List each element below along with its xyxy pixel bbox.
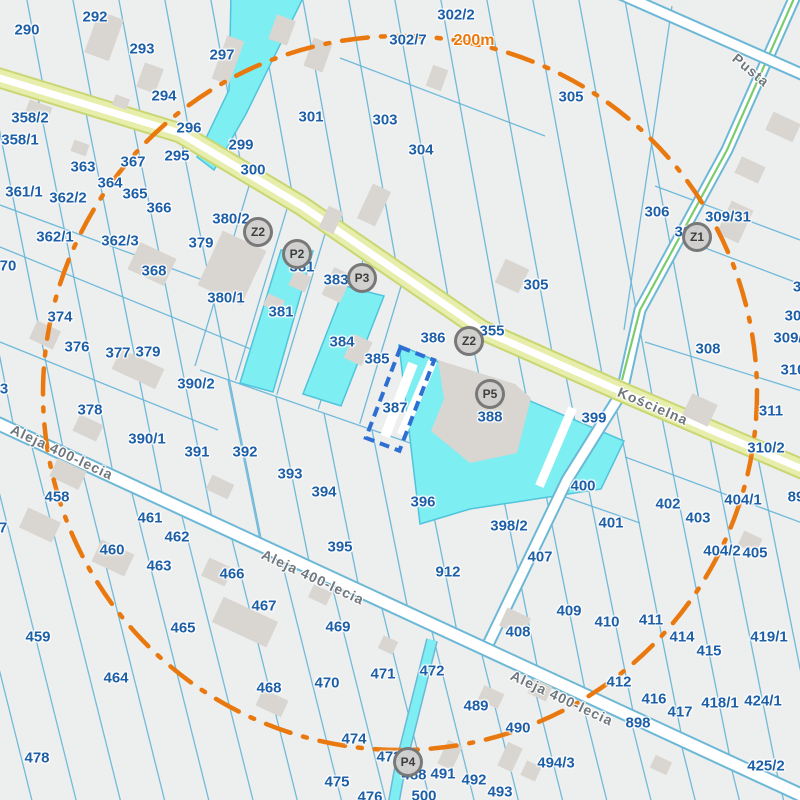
parcel-label-358-1: 358/1 <box>1 133 39 148</box>
street-name-label: Pusta <box>730 51 772 89</box>
parcel-label-374: 374 <box>47 310 72 325</box>
parcel-label-89: 89 <box>788 490 800 505</box>
parcel-label-300: 300 <box>240 163 265 178</box>
parcel-label-405: 405 <box>742 546 767 561</box>
parcel-label-493: 493 <box>487 785 512 800</box>
parcel-label-362-3: 362/3 <box>101 234 139 249</box>
parcel-label-378: 378 <box>77 403 102 418</box>
parcel-label-478: 478 <box>24 751 49 766</box>
parcel-label-305: 305 <box>558 90 583 105</box>
parcel-label-303: 303 <box>372 113 397 128</box>
parcel-label-414: 414 <box>669 630 694 645</box>
parcel-label-396: 396 <box>410 495 435 510</box>
parcel-label-468: 468 <box>256 681 281 696</box>
parcel-label-395: 395 <box>327 540 352 555</box>
parcel-label-407: 407 <box>527 550 552 565</box>
parcel-label-424-1: 424/1 <box>744 694 782 709</box>
parcel-label-384: 384 <box>329 335 354 350</box>
parcel-label-299: 299 <box>228 138 253 153</box>
parcel-label-399: 399 <box>581 411 606 426</box>
parcel-label-302-7: 302/7 <box>389 33 427 48</box>
parcel-label-467: 467 <box>251 599 276 614</box>
parcel-label-309-31: 309/31 <box>705 210 751 225</box>
parcel-label-408: 408 <box>505 625 530 640</box>
parcel-label-366: 366 <box>146 201 171 216</box>
parcel-label-400: 400 <box>570 479 595 494</box>
parcel-label-494-3: 494/3 <box>537 756 575 771</box>
radius-distance-label: 200m <box>454 33 495 49</box>
parcel-label-416: 416 <box>641 692 666 707</box>
parcel-label-460: 460 <box>99 543 124 558</box>
parcel-label-388: 388 <box>477 410 502 425</box>
parcel-label-365: 365 <box>122 187 147 202</box>
parcel-label-412: 412 <box>606 675 631 690</box>
parcel-label-419-1: 419/1 <box>750 630 788 645</box>
parcel-label-475: 475 <box>324 775 349 790</box>
parcel-label-390-2: 390/2 <box>177 377 215 392</box>
parcel-label-403: 403 <box>685 511 710 526</box>
parcel-label-306: 306 <box>644 205 669 220</box>
parcel-label-461: 461 <box>137 511 162 526</box>
parcel-label-294: 294 <box>151 89 176 104</box>
parcel-label-409: 409 <box>556 604 581 619</box>
parcel-label-362-1: 362/1 <box>36 230 74 245</box>
parcel-label-415: 415 <box>696 644 721 659</box>
parcel-label-311: 311 <box>759 404 783 419</box>
parcel-label-385: 385 <box>364 352 389 367</box>
parcel-label-410: 410 <box>594 615 619 630</box>
parcel-label-404-1: 404/1 <box>724 493 762 508</box>
parcel-label-358-2: 358/2 <box>11 111 49 126</box>
map-marker-p4[interactable]: P4 <box>393 747 423 777</box>
parcel-label-458: 458 <box>44 490 69 505</box>
parcel-label-292: 292 <box>82 10 107 25</box>
parcel-label-411: 411 <box>639 613 663 628</box>
parcel-label-363: 363 <box>70 160 95 175</box>
parcel-label-491: 491 <box>430 767 455 782</box>
parcel-label-309-: 309/ <box>773 331 800 346</box>
map-viewport[interactable]: 290292293297294296295299300367358/2358/1… <box>0 0 800 800</box>
parcel-label-386: 386 <box>420 331 445 346</box>
parcel-label-381: 381 <box>268 305 293 320</box>
parcel-label-464: 464 <box>103 671 128 686</box>
parcel-label-898: 898 <box>625 716 650 731</box>
parcel-label-377: 377 <box>105 346 130 361</box>
parcel-label-310: 310 <box>780 363 800 378</box>
parcel-label-394: 394 <box>311 485 336 500</box>
street-name-label: Kościelna <box>616 385 691 427</box>
parcel-label-398-2: 398/2 <box>490 519 528 534</box>
parcel-label-472: 472 <box>419 664 444 679</box>
parcel-label-393: 393 <box>277 467 302 482</box>
parcel-label-380-1: 380/1 <box>207 291 245 306</box>
parcel-label-490: 490 <box>505 721 530 736</box>
parcel-label-404-2: 404/2 <box>703 544 741 559</box>
map-marker-z2[interactable]: Z2 <box>454 326 484 356</box>
map-marker-p5[interactable]: P5 <box>475 379 505 409</box>
parcel-label-70: 70 <box>0 259 16 274</box>
parcel-label-30: 30 <box>785 309 800 324</box>
parcel-label-302-2: 302/2 <box>437 8 475 23</box>
map-marker-p2[interactable]: P2 <box>282 239 312 269</box>
parcel-label-3: 3 <box>793 280 800 295</box>
parcel-label-392: 392 <box>232 445 257 460</box>
parcel-label-463: 463 <box>146 559 171 574</box>
parcel-label-474: 474 <box>341 732 366 747</box>
parcel-label-471: 471 <box>370 667 395 682</box>
parcel-label-459: 459 <box>25 630 50 645</box>
parcel-label-296: 296 <box>176 121 201 136</box>
parcel-label-295: 295 <box>164 149 189 164</box>
parcel-label-364: 364 <box>97 176 122 191</box>
map-marker-p3[interactable]: P3 <box>347 263 377 293</box>
map-marker-z1[interactable]: Z1 <box>682 222 712 252</box>
parcel-label-301: 301 <box>298 110 323 125</box>
parcel-label-368: 368 <box>141 264 166 279</box>
parcel-label-305: 305 <box>523 278 548 293</box>
parcel-label-367: 367 <box>120 155 145 170</box>
parcel-label-465: 465 <box>170 621 195 636</box>
parcel-label-7: 7 <box>0 521 7 536</box>
map-marker-z2[interactable]: Z2 <box>243 217 273 247</box>
parcel-label-290: 290 <box>14 23 39 38</box>
parcel-label-293: 293 <box>129 42 154 57</box>
parcel-label-500: 500 <box>411 789 436 800</box>
parcel-label-308: 308 <box>695 342 720 357</box>
parcel-label-466: 466 <box>219 567 244 582</box>
parcel-label-297: 297 <box>209 48 234 63</box>
parcel-label-401: 401 <box>598 516 623 531</box>
parcel-label-383: 383 <box>323 273 348 288</box>
parcel-label-489: 489 <box>463 699 488 714</box>
parcel-label-402: 402 <box>655 497 680 512</box>
parcel-label-379: 379 <box>135 345 160 360</box>
parcel-label-469: 469 <box>325 620 350 635</box>
parcel-label-387: 387 <box>382 401 407 416</box>
parcel-label-462: 462 <box>164 530 189 545</box>
parcel-label-304: 304 <box>408 143 433 158</box>
parcel-label-390-1: 390/1 <box>128 432 166 447</box>
parcel-label-418-1: 418/1 <box>701 696 739 711</box>
parcel-label-362-2: 362/2 <box>49 191 87 206</box>
parcel-label-425-2: 425/2 <box>747 759 785 774</box>
parcel-label-912: 912 <box>435 565 460 580</box>
parcel-label-417: 417 <box>667 705 692 720</box>
map-labels-layer: 290292293297294296295299300367358/2358/1… <box>0 0 800 800</box>
parcel-label-3: 3 <box>0 382 8 397</box>
parcel-label-379: 379 <box>188 236 213 251</box>
parcel-label-376: 376 <box>64 340 89 355</box>
parcel-label-476: 476 <box>357 790 382 800</box>
parcel-label-391: 391 <box>184 445 209 460</box>
parcel-label-361-1: 361/1 <box>5 185 43 200</box>
parcel-label-310-2: 310/2 <box>747 441 785 456</box>
parcel-label-492: 492 <box>461 773 486 788</box>
parcel-label-470: 470 <box>314 676 339 691</box>
street-name-label: Aleja 400-lecia <box>9 422 116 482</box>
